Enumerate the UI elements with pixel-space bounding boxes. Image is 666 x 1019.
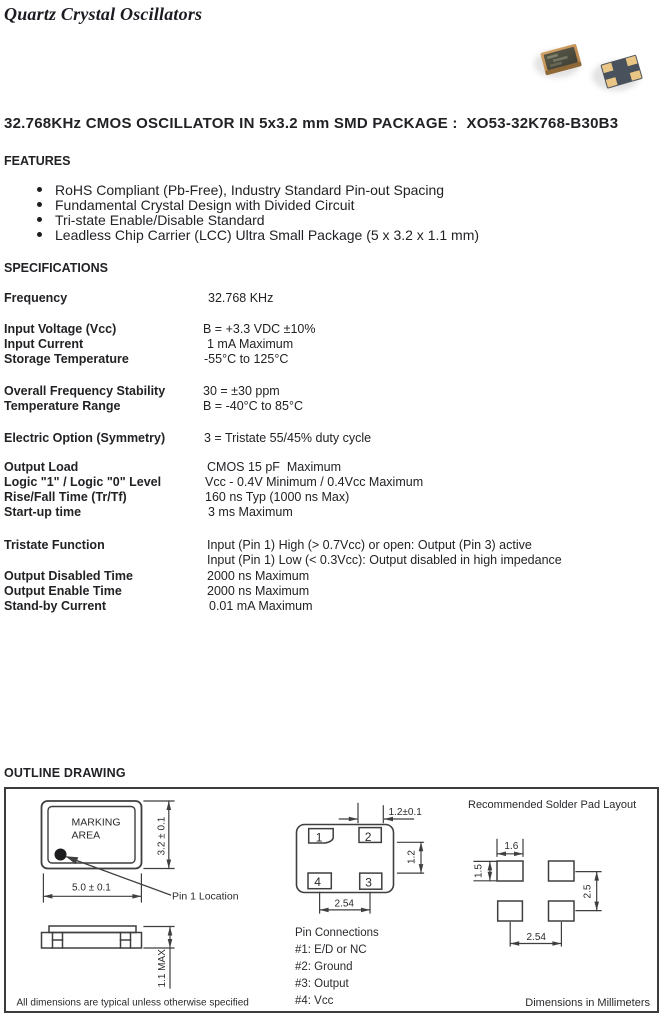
svg-text:1.2: 1.2	[407, 850, 418, 864]
svg-text:2.54: 2.54	[527, 932, 547, 943]
svg-text:#3: Output: #3: Output	[295, 978, 350, 990]
svg-text:3: 3	[365, 875, 372, 889]
svg-text:All dimensions are typical unl: All dimensions are typical unless otherw…	[17, 998, 249, 1009]
svg-text:5.0 ± 0.1: 5.0 ± 0.1	[72, 883, 111, 894]
svg-text:2.54: 2.54	[335, 898, 355, 909]
svg-text:Recommended Solder Pad Layout: Recommended Solder Pad Layout	[468, 799, 636, 811]
svg-text:Pin Connections: Pin Connections	[295, 927, 379, 939]
svg-text:#4: Vcc: #4: Vcc	[295, 995, 334, 1007]
svg-text:1: 1	[316, 830, 323, 844]
svg-text:1.1 MAX: 1.1 MAX	[157, 949, 168, 988]
svg-text:2.5: 2.5	[583, 884, 594, 898]
svg-text:MARKING: MARKING	[72, 817, 121, 829]
svg-text:1.2±0.1: 1.2±0.1	[389, 807, 423, 818]
svg-text:1.5: 1.5	[474, 864, 485, 878]
svg-text:2: 2	[365, 830, 372, 844]
svg-text:Pin 1 Location: Pin 1 Location	[172, 891, 239, 903]
svg-text:AREA: AREA	[72, 830, 101, 842]
svg-text:4: 4	[314, 875, 321, 889]
svg-text:1.6: 1.6	[504, 841, 518, 852]
svg-text:3.2 ± 0.1: 3.2 ± 0.1	[157, 816, 168, 855]
svg-text:#2: Ground: #2: Ground	[295, 961, 353, 973]
svg-text:#1: E/D or NC: #1: E/D or NC	[295, 944, 367, 956]
svg-text:Dimensions in Millimeters: Dimensions in Millimeters	[525, 997, 650, 1009]
